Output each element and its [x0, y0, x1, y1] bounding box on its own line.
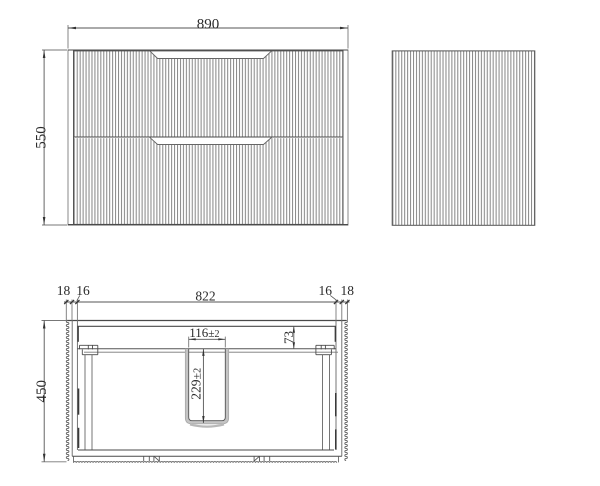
- svg-text:550: 550: [33, 126, 49, 149]
- svg-text:73: 73: [281, 331, 296, 344]
- svg-text:18: 18: [341, 283, 355, 298]
- svg-text:822: 822: [195, 289, 215, 304]
- svg-text:16: 16: [76, 283, 90, 298]
- svg-text:18: 18: [57, 283, 71, 298]
- svg-text:890: 890: [197, 17, 220, 33]
- svg-text:450: 450: [34, 380, 50, 403]
